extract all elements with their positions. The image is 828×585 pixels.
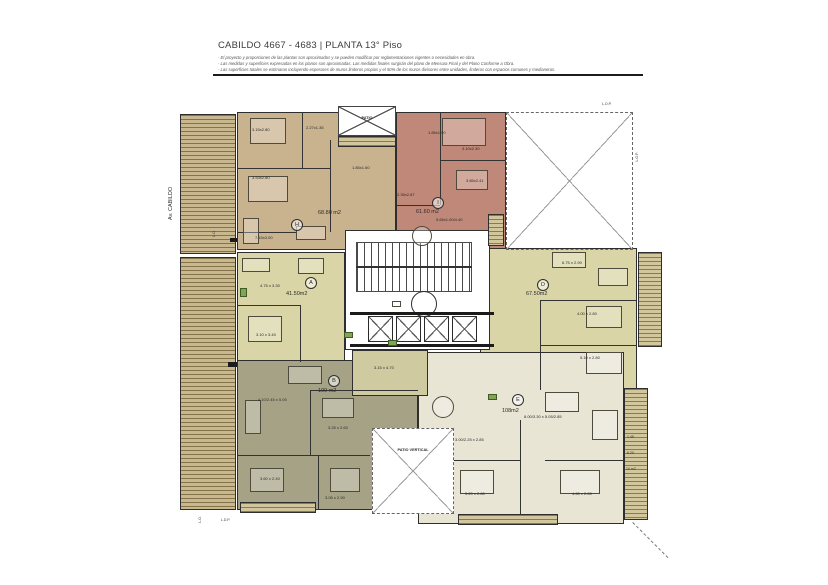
stair-landing-line [356,266,472,268]
patio-top-box [338,106,396,136]
wall-segment [520,420,521,524]
unit-d-letter: D [537,279,549,291]
unit-e-letter: E [512,394,524,406]
room-dim: 3.10x2.30 [462,147,480,151]
patio-vertical-box [372,428,454,514]
elevator-wall-bottom [350,344,494,347]
property-line-diagonal [632,522,668,558]
wall-segment [310,390,311,455]
bed [586,306,622,328]
room-dim: 3.15x2.80 [252,128,270,132]
room-dim: 2.35x2.87 [397,193,415,197]
wall-segment [540,345,637,346]
wall-segment [318,455,319,510]
boundary-label-lop-top: L.O.P. [602,103,611,107]
balcony-dim-2: 6.20 [627,452,634,456]
bed [322,398,354,418]
room-dim: 3.00/2.25 x 2.85 [455,438,484,442]
wall-segment [302,112,303,168]
airspace-cross-area [506,112,633,250]
table [288,366,322,384]
unit-h-letter: H [291,219,303,231]
ac-unit-marker [388,340,397,346]
room-dim: 4.00 x 2.80 [577,312,597,316]
room-dim: 3.15 x 4.70 [374,366,394,370]
unit-i-letter: I [432,197,444,209]
elevator-wall-top [350,312,494,315]
unit-a-letter: A [305,277,317,289]
wall-segment [237,168,330,169]
room-dim: 4.10/2.45 x 5.05 [258,398,287,402]
wall-segment [540,300,637,301]
room-dim: 1.85x1.60 [352,166,370,170]
round-table [412,226,432,246]
room-dim: 4.65 x 2.80 [572,492,592,496]
sofa [242,258,270,272]
room-dim: 3.60 x 2.40 [260,477,280,481]
balcony-strip-left-lower [180,257,236,510]
unit-d-area: 67.50m2 [526,291,547,297]
room-dim: 3.10 x 3.40 [256,333,276,337]
note-line-1: - El proyecto y proporciones de las plan… [218,56,475,61]
patio-top-label: PATIO [338,116,396,120]
wall-segment [300,305,301,362]
sofa [592,410,618,440]
room-dim: 3.25 x 2.60 [328,426,348,430]
room-dim: 3.05 x 2.90 [325,496,345,500]
room-dim: 7.15x3.00 [255,236,273,240]
balcony-unit-d [638,252,662,347]
ac-unit-marker [240,288,247,297]
boundary-label-lo-bottom: L.O. [199,516,203,523]
street-label-av-cabildo-top: Av. CABILDO [168,130,174,220]
room-dim: 1.85x1.90 [428,131,446,135]
room-dim: 3.20 x 2.80 [465,492,485,496]
elevator-4 [452,316,477,342]
sofa [598,268,628,286]
wall-segment [237,455,370,456]
bed [248,316,282,342]
room-dim: 3.85x2.41 [466,179,484,183]
elevator-1 [368,316,393,342]
table [298,258,324,274]
room-dim: 6.75 x 2.90 [562,261,582,265]
wall-segment [440,112,441,205]
wall-segment [440,160,506,161]
bed [330,468,360,492]
unit-b-area: 100 m2 [318,388,336,394]
balcony-unit-i [488,214,504,246]
wall-segment [237,305,300,306]
round-table [432,396,454,418]
floorplan-canvas: CABILDO 4667 - 4683 | PLANTA 13° Piso - … [0,0,828,585]
ac-unit-marker [344,332,353,338]
patio-vertical-label: PATIO VERTICAL [390,448,436,452]
note-line-3: - Las superficies totales se estimaron i… [218,68,555,73]
sofa [245,400,261,434]
room-dim: 3.53x2.80 [252,176,270,180]
room-dim: 2.27x1.35 [306,126,324,130]
elevator-3 [424,316,449,342]
unit-a-area: 41.50m2 [286,291,307,297]
page-title: CABILDO 4667 - 4683 | PLANTA 13° Piso [218,41,402,51]
wall-segment [545,460,624,461]
unit-b-letter: B [328,375,340,387]
boundary-label-lo-top: L.O. [213,230,217,237]
unit-e-area: 108m2 [502,408,519,414]
balcony-unit-e-bottom [458,514,558,525]
boundary-label-ldp: L.D.P. [221,519,230,523]
bed [442,118,486,146]
room-dim: 4.75 x 3.30 [260,284,280,288]
boundary-label-lop-right: L.O.P. [636,152,640,161]
wall-segment [330,140,331,232]
balcony-unit-b-bottom [240,502,316,513]
unit-i-area: 61.60 m2 [416,209,439,215]
note-line-2: - Las medidas y superficies expresadas e… [218,62,514,67]
balcony-dim-1: 1.45 [627,436,634,440]
ac-unit-marker [488,394,497,400]
table [545,392,579,412]
patio-top-grate [338,136,396,147]
balcony-dim-3: 10 m2 [626,468,636,472]
room-dim: 5.65x1.00/4.40 [436,218,462,222]
balcony-strip-left-upper [180,114,236,254]
elevator-2 [396,316,421,342]
room-dim: 5.10 x 2.80 [580,356,600,360]
core-fixture [392,301,401,307]
unit-h-area: 68.80 m2 [318,210,341,216]
title-divider [213,74,643,76]
room-dim: 8.00/3.30 x 5.05/2.85 [524,415,562,419]
